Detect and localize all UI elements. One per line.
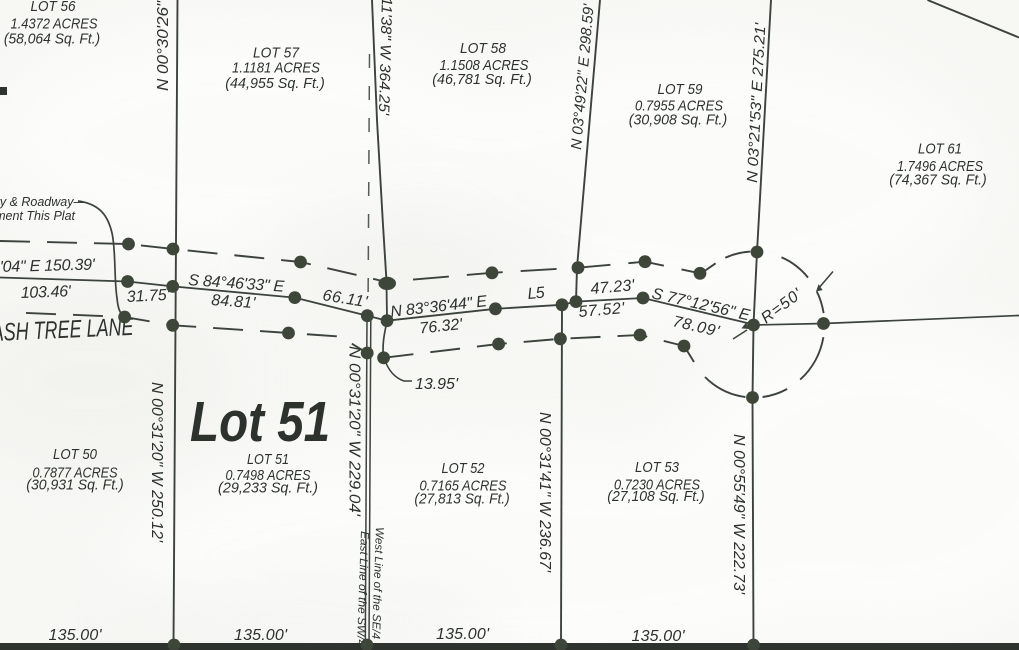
svg-text:103.46': 103.46' [21,283,72,302]
svg-text:L5: L5 [527,285,546,303]
svg-text:(27,108 Sq. Ft.): (27,108 Sq. Ft.) [607,489,704,506]
svg-text:N 00°31'41" W 236.67': N 00°31'41" W 236.67' [536,412,553,573]
svg-text:LOT 58: LOT 58 [460,41,506,58]
svg-text:N 00°31'20" W 229.04': N 00°31'20" W 229.04' [346,346,363,517]
svg-text:(27,813 Sq. Ft.): (27,813 Sq. Ft.) [414,491,509,508]
svg-text:LOT 53: LOT 53 [635,458,679,475]
svg-text:LOT 50: LOT 50 [53,445,97,462]
svg-text:N 00°55'49" W 222.73': N 00°55'49" W 222.73' [730,434,747,595]
svg-text:(30,931 Sq. Ft.): (30,931 Sq. Ft.) [26,477,123,494]
svg-text:LOT 61: LOT 61 [918,140,962,157]
svg-text:Lot 51: Lot 51 [190,390,330,454]
svg-text:135.00': 135.00' [49,627,103,644]
svg-text:(46,781 Sq. Ft.): (46,781 Sq. Ft.) [432,72,531,88]
svg-text:(30,908 Sq. Ft.): (30,908 Sq. Ft.) [629,112,727,128]
svg-text:0.7955 ACRES: 0.7955 ACRES [635,97,724,114]
svg-text:N 00°31'20" W 250.12': N 00°31'20" W 250.12' [148,382,165,543]
svg-text:11'38" W 364.25': 11'38" W 364.25' [375,0,395,116]
svg-text:LOT 52: LOT 52 [442,459,485,476]
svg-text:(74,367 Sq. Ft.): (74,367 Sq. Ft.) [889,172,986,189]
svg-text:13.95': 13.95' [415,376,459,393]
svg-text:'04" E 150.39': '04" E 150.39' [0,256,96,276]
svg-text:31.75': 31.75' [126,287,171,306]
svg-text:(58,064 Sq. Ft.): (58,064 Sq. Ft.) [4,31,100,48]
svg-text:N 00°30'26": N 00°30'26" [155,0,172,91]
svg-text:ity & Roadway—: ity & Roadway— [0,195,86,209]
svg-text:135.00': 135.00' [436,626,490,643]
svg-text:(29,233 Sq. Ft.): (29,233 Sq. Ft.) [218,480,318,496]
svg-text:1.1508 ACRES: 1.1508 ACRES [440,56,529,73]
svg-text:1.4372 ACRES: 1.4372 ACRES [11,15,99,32]
svg-text:135.00': 135.00' [632,628,686,645]
svg-text:84.81': 84.81' [211,292,257,312]
svg-text:1.1181 ACRES: 1.1181 ACRES [232,59,320,76]
svg-text:135.00': 135.00' [234,627,288,644]
svg-text:ment This Plat: ment This Plat [0,209,76,223]
svg-text:(44,955 Sq. Ft.): (44,955 Sq. Ft.) [225,76,324,92]
svg-text:LOT 56: LOT 56 [31,0,76,15]
